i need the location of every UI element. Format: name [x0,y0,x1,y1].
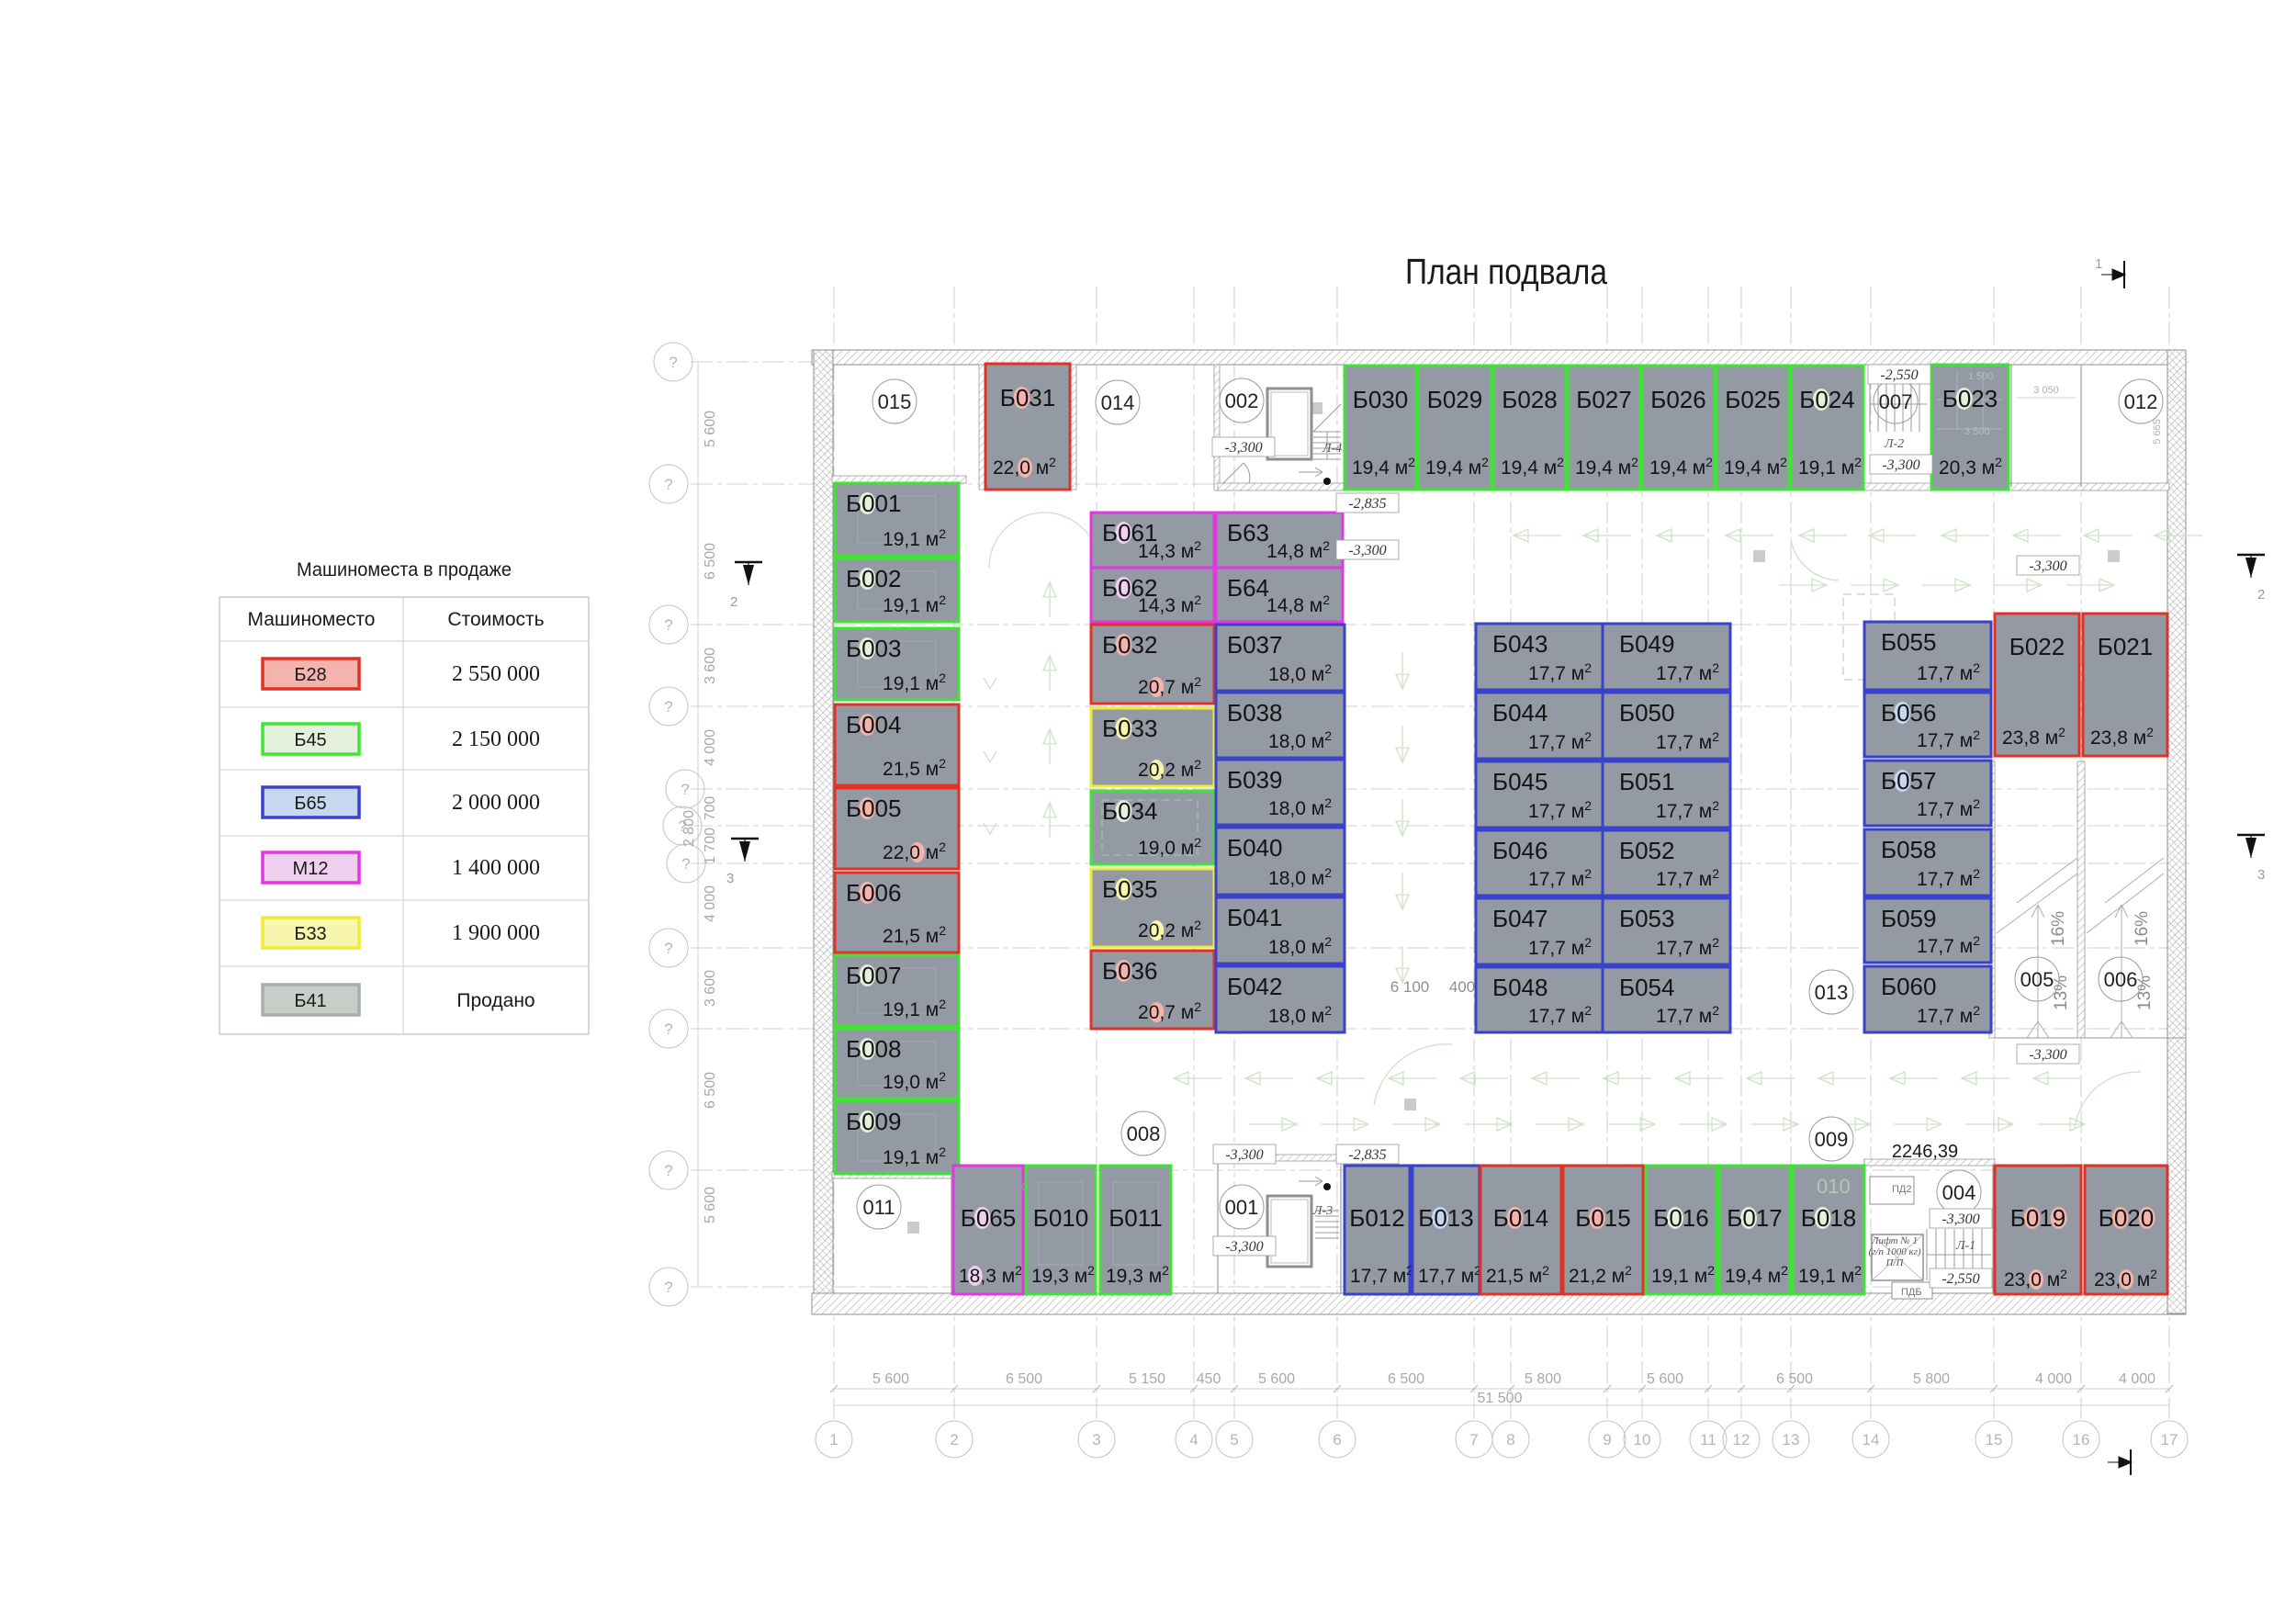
svg-text:5: 5 [1230,1431,1238,1448]
svg-text:004: 004 [1942,1181,1976,1204]
svg-text:009: 009 [1815,1128,1849,1151]
svg-text:17,7 м2: 17,7 м2 [1528,729,1592,753]
svg-text:23,8 м2: 23,8 м2 [2002,725,2065,749]
svg-text:Б004: Б004 [846,711,901,738]
svg-text:4: 4 [1189,1431,1198,1448]
svg-text:14: 14 [1863,1431,1880,1448]
svg-text:19,4 м2: 19,4 м2 [1575,455,1638,479]
svg-text:Б006: Б006 [846,879,901,907]
svg-text:17,7 м2: 17,7 м2 [1350,1263,1413,1287]
svg-text:Б45: Б45 [294,730,326,750]
svg-text:17,7 м2: 17,7 м2 [1656,1003,1719,1027]
svg-text:Стоимость: Стоимость [447,609,544,630]
svg-text:19,4 м2: 19,4 м2 [1724,455,1787,479]
svg-text:16%: 16% [2049,911,2068,946]
svg-text:23,0 м2: 23,0 м2 [2094,1267,2157,1291]
svg-text:?: ? [664,476,672,493]
svg-text:14,8 м2: 14,8 м2 [1266,538,1330,562]
svg-text:Б013: Б013 [1418,1204,1473,1232]
svg-text:2 150 000: 2 150 000 [452,727,540,751]
svg-text:5 150: 5 150 [1129,1371,1165,1387]
svg-text:Б019: Б019 [2010,1204,2065,1232]
svg-text:-2,550: -2,550 [1941,1271,1979,1287]
svg-text:-3,300: -3,300 [2029,1047,2066,1063]
svg-text:?: ? [664,1020,672,1038]
svg-text:?: ? [664,1279,672,1296]
svg-text:17,7 м2: 17,7 м2 [1656,729,1719,753]
svg-text:20,2 м2: 20,2 м2 [1138,757,1201,781]
svg-text:Б052: Б052 [1619,837,1674,864]
svg-text:19,1 м2: 19,1 м2 [1651,1263,1715,1287]
svg-text:План подвала: План подвала [1405,253,1607,292]
svg-text:011: 011 [862,1196,895,1219]
svg-text:006: 006 [2104,968,2138,991]
svg-text:3 600: 3 600 [703,970,718,1007]
svg-text:007: 007 [1879,390,1913,413]
svg-text:-3,300: -3,300 [1882,457,1919,473]
svg-text:-3,300: -3,300 [2029,558,2066,574]
svg-text:008: 008 [1127,1122,1161,1145]
svg-text:20,7 м2: 20,7 м2 [1138,674,1201,698]
svg-text:?: ? [664,940,672,957]
svg-text:Машиноместо: Машиноместо [248,609,376,630]
svg-text:17,7 м2: 17,7 м2 [1917,1003,1980,1027]
svg-text:-2,835: -2,835 [1348,496,1386,512]
svg-text:3: 3 [726,871,734,886]
svg-text:Б020: Б020 [2099,1204,2154,1232]
svg-text:3 600: 3 600 [703,648,718,684]
svg-text:2 000 000: 2 000 000 [452,791,540,815]
svg-text:19,3 м2: 19,3 м2 [1031,1263,1095,1287]
svg-text:17,7 м2: 17,7 м2 [1528,660,1592,684]
svg-text:17,7 м2: 17,7 м2 [1917,660,1980,684]
svg-text:5 600: 5 600 [872,1371,909,1387]
svg-text:5 800: 5 800 [1913,1371,1950,1387]
svg-text:19,3 м2: 19,3 м2 [1106,1263,1169,1287]
svg-text:5 600: 5 600 [1258,1371,1295,1387]
svg-text:8: 8 [1506,1431,1514,1448]
svg-text:ПДБ: ПДБ [1901,1287,1922,1298]
svg-text:16%: 16% [2133,911,2152,946]
svg-text:Б025: Б025 [1725,386,1780,413]
svg-text:19,1 м2: 19,1 м2 [1798,1263,1862,1287]
svg-text:Б014: Б014 [1493,1204,1548,1232]
svg-text:19,4 м2: 19,4 м2 [1425,455,1489,479]
svg-text:20,7 м2: 20,7 м2 [1138,999,1201,1023]
svg-text:(г/п 1000 кг): (г/п 1000 кг) [1868,1246,1920,1257]
svg-text:Б008: Б008 [846,1035,901,1063]
svg-text:6 100: 6 100 [1390,978,1430,996]
svg-text:012: 012 [2124,390,2158,413]
svg-text:-3,300: -3,300 [1941,1212,1979,1227]
svg-text:17,7 м2: 17,7 м2 [1528,798,1592,822]
svg-text:Б049: Б049 [1619,630,1674,658]
svg-text:Б045: Б045 [1492,768,1548,795]
svg-text:14,8 м2: 14,8 м2 [1266,592,1330,616]
svg-text:23,8 м2: 23,8 м2 [2090,725,2154,749]
svg-text:18,0 м2: 18,0 м2 [1268,865,1332,889]
svg-text:Б034: Б034 [1102,797,1157,825]
svg-text:17,7 м2: 17,7 м2 [1528,866,1592,890]
svg-text:Б030: Б030 [1353,386,1408,413]
svg-text:Б032: Б032 [1102,631,1157,659]
svg-text:Б028: Б028 [1502,386,1557,413]
svg-text:014: 014 [1101,391,1135,414]
svg-text:Б047: Б047 [1492,905,1548,932]
svg-text:002: 002 [1225,389,1259,412]
svg-text:Б039: Б039 [1227,766,1282,794]
svg-text:19,0 м2: 19,0 м2 [1138,835,1201,859]
svg-text:Б056: Б056 [1881,699,1936,727]
svg-text:51 500: 51 500 [1478,1391,1523,1406]
svg-text:2 800: 2 800 [681,810,697,847]
svg-text:17,7 м2: 17,7 м2 [1528,1003,1592,1027]
svg-text:Продано: Продано [456,990,535,1011]
svg-text:2246,39: 2246,39 [1892,1142,1958,1162]
svg-text:19,1 м2: 19,1 м2 [883,592,946,616]
svg-text:Б035: Б035 [1102,875,1157,903]
svg-text:17,7 м2: 17,7 м2 [1656,935,1719,959]
svg-text:010: 010 [1817,1175,1851,1198]
svg-text:Б005: Б005 [846,795,901,822]
svg-text:2: 2 [730,594,737,610]
svg-text:Машиноместа в продаже: Машиноместа в продаже [297,559,512,580]
svg-text:19,1 м2: 19,1 м2 [883,526,946,550]
svg-text:Б040: Б040 [1227,834,1282,862]
svg-text:3 500: 3 500 [1964,426,1990,437]
svg-text:Б017: Б017 [1727,1204,1782,1232]
svg-text:Б33: Б33 [294,924,326,944]
svg-text:1 500: 1 500 [1968,371,1994,382]
svg-text:Б037: Б037 [1227,631,1282,659]
svg-text:Б018: Б018 [1801,1204,1856,1232]
svg-text:11: 11 [1700,1431,1716,1448]
svg-text:400: 400 [1449,978,1475,996]
svg-text:Б63: Б63 [1227,519,1269,547]
svg-text:17,7 м2: 17,7 м2 [1656,798,1719,822]
svg-text:П/П: П/П [1885,1257,1905,1268]
svg-text:Б41: Б41 [294,991,326,1011]
svg-text:Б001: Б001 [846,490,901,517]
svg-text:1 700: 1 700 [703,828,718,864]
svg-text:20,2 м2: 20,2 м2 [1138,918,1201,941]
svg-text:Б065: Б065 [961,1204,1016,1232]
svg-text:Л-2: Л-2 [1884,437,1904,451]
svg-text:Б021: Б021 [2098,633,2153,660]
svg-text:19,1 м2: 19,1 м2 [1798,455,1862,479]
svg-text:15: 15 [1986,1431,2003,1448]
svg-text:13: 13 [1783,1431,1800,1448]
svg-text:Б054: Б054 [1619,974,1674,1001]
svg-text:16: 16 [2073,1431,2090,1448]
svg-text:Б65: Б65 [294,794,326,814]
svg-text:19,4 м2: 19,4 м2 [1725,1263,1788,1287]
svg-text:4 000: 4 000 [2035,1371,2072,1387]
svg-text:Б051: Б051 [1619,768,1674,795]
svg-text:Б044: Б044 [1492,699,1548,727]
svg-text:18,0 м2: 18,0 м2 [1268,795,1332,819]
svg-text:17,7 м2: 17,7 м2 [1528,935,1592,959]
svg-text:17,7 м2: 17,7 м2 [1917,796,1980,820]
svg-text:21,2 м2: 21,2 м2 [1569,1263,1632,1287]
svg-text:19,4 м2: 19,4 м2 [1352,455,1415,479]
svg-text:Б038: Б038 [1227,699,1282,727]
svg-text:1: 1 [829,1431,838,1448]
svg-text:-2,835: -2,835 [1348,1147,1386,1163]
svg-text:3 050: 3 050 [2033,385,2059,396]
svg-text:Б057: Б057 [1881,767,1936,795]
svg-text:005: 005 [2020,968,2054,991]
svg-text:20,3 м2: 20,3 м2 [1939,455,2002,479]
svg-text:19,1 м2: 19,1 м2 [883,1144,946,1168]
svg-text:Б009: Б009 [846,1108,901,1135]
svg-text:Б024: Б024 [1799,386,1854,413]
svg-text:-3,300: -3,300 [1348,543,1386,558]
svg-text:Б048: Б048 [1492,974,1548,1001]
svg-text:5 600: 5 600 [703,1187,718,1223]
svg-text:?: ? [664,616,672,634]
svg-text:18,0 м2: 18,0 м2 [1268,934,1332,958]
svg-text:Б026: Б026 [1650,386,1705,413]
svg-text:?: ? [664,698,672,716]
svg-text:Б050: Б050 [1619,699,1674,727]
svg-text:-3,300: -3,300 [1225,1239,1263,1255]
svg-text:18,3 м2: 18,3 м2 [959,1263,1022,1287]
svg-text:17,7 м2: 17,7 м2 [1418,1263,1481,1287]
svg-text:Б023: Б023 [1942,385,1998,412]
svg-text:12: 12 [1733,1431,1750,1448]
svg-text:-2,550: -2,550 [1880,367,1918,383]
svg-text:Б060: Б060 [1881,973,1936,1000]
svg-text:Л-3: Л-3 [1312,1204,1333,1218]
svg-text:Б28: Б28 [294,665,326,685]
svg-text:6 500: 6 500 [1006,1371,1042,1387]
svg-text:6 500: 6 500 [703,1072,718,1109]
svg-text:6 500: 6 500 [703,543,718,580]
svg-text:18,0 м2: 18,0 м2 [1268,1003,1332,1027]
svg-text:Б007: Б007 [846,962,901,989]
svg-text:М12: М12 [293,859,329,879]
svg-text:Б042: Б042 [1227,973,1282,1000]
svg-text:23,0 м2: 23,0 м2 [2004,1267,2067,1291]
svg-text:Б033: Б033 [1102,715,1157,742]
svg-text:19,4 м2: 19,4 м2 [1501,455,1564,479]
svg-text:18,0 м2: 18,0 м2 [1268,728,1332,752]
svg-text:19,1 м2: 19,1 м2 [883,671,946,694]
svg-text:Б002: Б002 [846,565,901,592]
svg-text:2: 2 [2257,587,2265,603]
svg-text:2 550 000: 2 550 000 [452,662,540,686]
svg-text:Б015: Б015 [1575,1204,1630,1232]
svg-text:21,5 м2: 21,5 м2 [883,756,946,780]
svg-text:17,7 м2: 17,7 м2 [1656,866,1719,890]
svg-text:-3,300: -3,300 [1225,1147,1263,1163]
svg-text:4 000: 4 000 [2119,1371,2155,1387]
svg-text:1 900 000: 1 900 000 [452,921,540,945]
svg-text:17: 17 [2161,1431,2178,1448]
svg-text:Б029: Б029 [1427,386,1482,413]
svg-text:?: ? [681,855,690,873]
svg-text:?: ? [669,354,677,371]
svg-text:Б012: Б012 [1349,1204,1404,1232]
svg-text:6: 6 [1333,1431,1341,1448]
svg-text:Б055: Б055 [1881,628,1936,656]
svg-text:Б041: Б041 [1227,904,1282,931]
svg-text:9: 9 [1603,1431,1611,1448]
svg-text:19,1 м2: 19,1 м2 [883,997,946,1020]
svg-text:ПД2: ПД2 [1892,1184,1911,1195]
svg-text:21,5 м2: 21,5 м2 [883,923,946,947]
svg-text:Б059: Б059 [1881,905,1936,932]
svg-text:Б046: Б046 [1492,837,1548,864]
svg-text:Л-1: Л-1 [1955,1239,1975,1253]
svg-text:Б011: Б011 [1109,1204,1163,1232]
svg-text:?: ? [681,781,689,798]
svg-text:700: 700 [703,796,718,821]
svg-text:001: 001 [1225,1196,1259,1219]
svg-text:14,3 м2: 14,3 м2 [1138,538,1201,562]
svg-text:17,7 м2: 17,7 м2 [1917,933,1980,957]
svg-text:17,7 м2: 17,7 м2 [1917,866,1980,890]
svg-text:Б010: Б010 [1033,1204,1088,1232]
svg-text:Б043: Б043 [1492,630,1548,658]
svg-text:Б016: Б016 [1653,1204,1708,1232]
svg-text:5 665: 5 665 [2152,419,2163,445]
svg-text:5 600: 5 600 [703,411,718,447]
svg-text:22,0 м2: 22,0 м2 [993,455,1056,479]
svg-text:18,0 м2: 18,0 м2 [1268,661,1332,685]
svg-text:3: 3 [1092,1431,1100,1448]
svg-text:450: 450 [1197,1371,1221,1387]
svg-text:Лифт № 1: Лифт № 1 [1871,1235,1918,1246]
svg-text:1: 1 [2095,256,2102,272]
svg-text:4 000: 4 000 [703,885,718,922]
svg-text:5 600: 5 600 [1647,1371,1683,1387]
svg-text:Б031: Б031 [1000,384,1055,411]
svg-text:Б64: Б64 [1227,574,1269,602]
svg-text:10: 10 [1634,1431,1651,1448]
svg-text:17,7 м2: 17,7 м2 [1917,727,1980,751]
svg-text:1 400 000: 1 400 000 [452,856,540,880]
svg-text:22,0 м2: 22,0 м2 [883,840,946,863]
svg-text:19,0 м2: 19,0 м2 [883,1069,946,1093]
svg-text:Б022: Б022 [2009,633,2065,660]
svg-text:3: 3 [2257,867,2265,883]
svg-text:015: 015 [878,390,912,413]
svg-text:7: 7 [1469,1431,1478,1448]
svg-text:17,7 м2: 17,7 м2 [1656,660,1719,684]
svg-text:14,3 м2: 14,3 м2 [1138,592,1201,616]
svg-text:19,4 м2: 19,4 м2 [1649,455,1713,479]
svg-text:Б058: Б058 [1881,836,1936,863]
svg-text:Б036: Б036 [1102,957,1157,985]
svg-text:2: 2 [950,1431,958,1448]
svg-text:4 000: 4 000 [703,729,718,766]
svg-text:5 800: 5 800 [1525,1371,1561,1387]
svg-text:Б027: Б027 [1576,386,1631,413]
svg-text:21,5 м2: 21,5 м2 [1486,1263,1549,1287]
svg-text:Л-4: Л-4 [1322,442,1342,456]
svg-text:6 500: 6 500 [1776,1371,1813,1387]
svg-text:-3,300: -3,300 [1224,440,1262,456]
svg-text:Б003: Б003 [846,635,901,662]
svg-text:013: 013 [1815,981,1849,1004]
svg-text:6 500: 6 500 [1388,1371,1424,1387]
svg-text:?: ? [664,1162,672,1179]
svg-text:Б053: Б053 [1619,905,1674,932]
